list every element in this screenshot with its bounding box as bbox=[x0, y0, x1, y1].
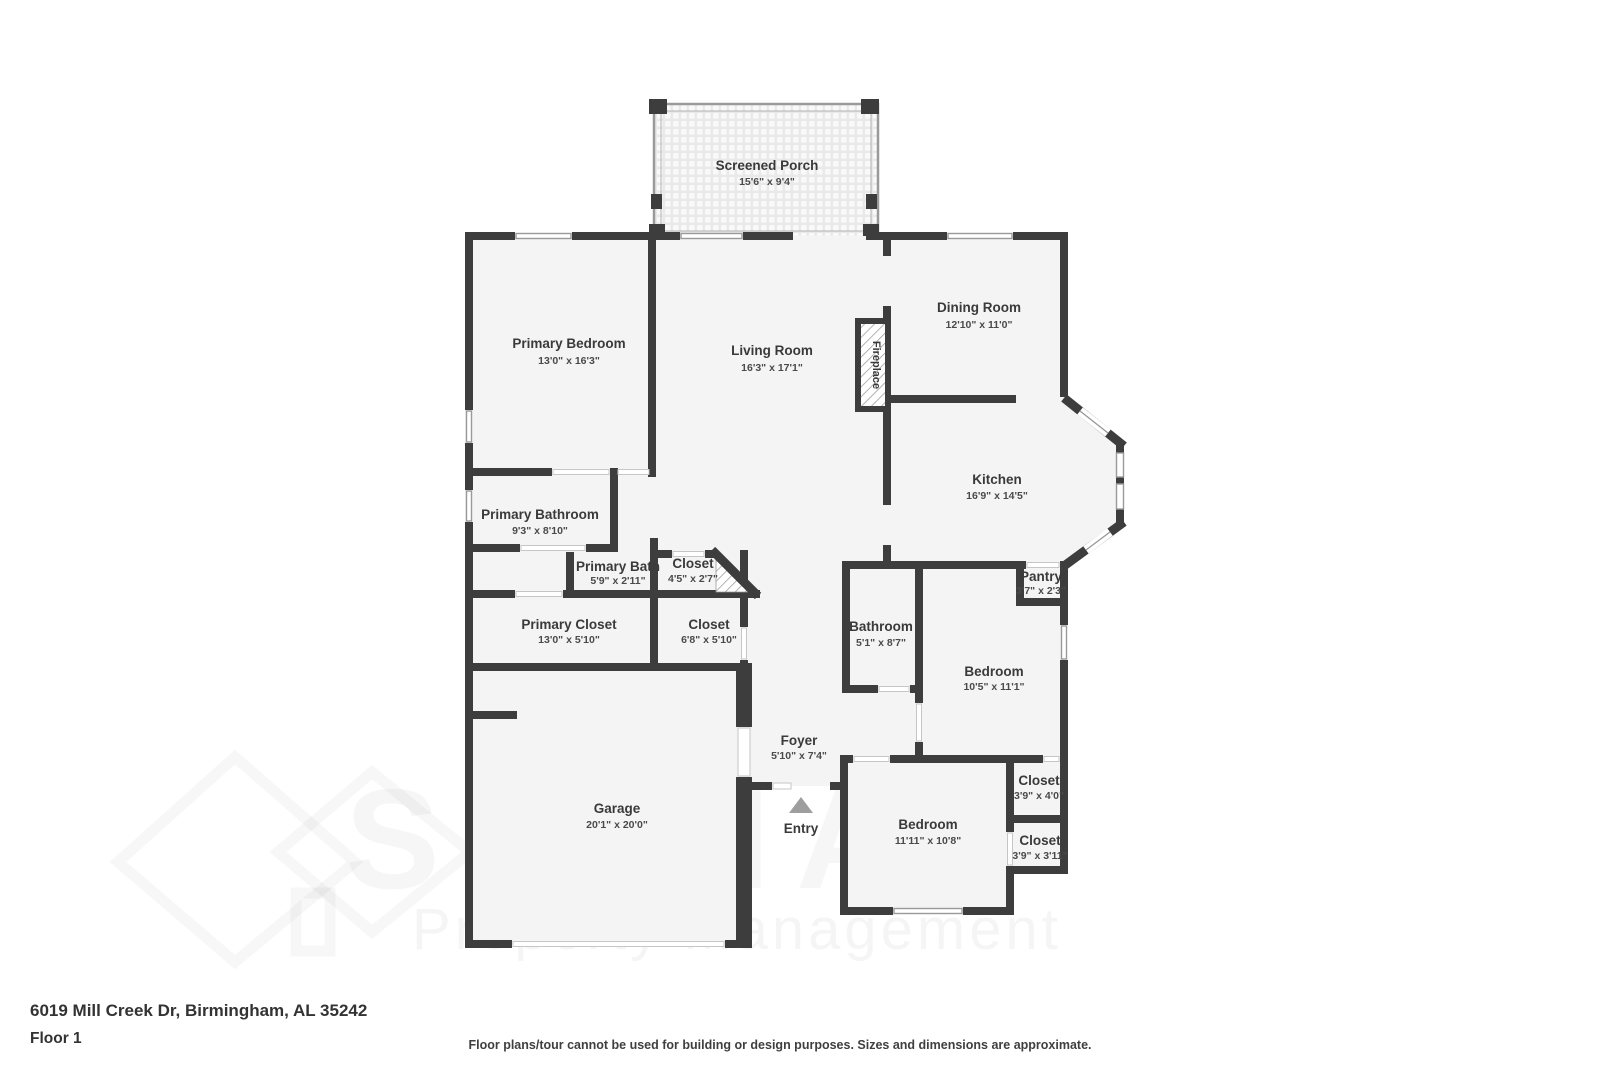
room-dims-foyer: 5'10" x 7'4" bbox=[771, 750, 827, 762]
room-label-bedroom-front: Bedroom bbox=[898, 817, 957, 832]
room-label-pantry: Pantry bbox=[1020, 569, 1063, 584]
room-dims-primary-bedroom: 13'0" x 16'3" bbox=[538, 355, 600, 367]
room-label-living-room: Living Room bbox=[731, 343, 813, 358]
room-label-dining-room: Dining Room bbox=[937, 300, 1021, 315]
room-dims-screened-porch: 15'6" x 9'4" bbox=[739, 176, 795, 188]
room-dims-kitchen: 16'9" x 14'5" bbox=[966, 490, 1028, 502]
room-dims-pantry: 3'7" x 2'3" bbox=[1016, 585, 1066, 597]
room-label-bathroom: Bathroom bbox=[849, 619, 913, 634]
room-dims-closet-rear: 3'9" x 4'0" bbox=[1014, 790, 1064, 802]
room-dims-closet-hall: 4'5" x 2'7" bbox=[668, 573, 718, 585]
room-label-primary-bathroom: Primary Bathroom bbox=[481, 507, 599, 522]
room-label-foyer: Foyer bbox=[781, 733, 819, 748]
room-label-garage: Garage bbox=[594, 801, 641, 816]
room-label-bedroom-rear: Bedroom bbox=[964, 664, 1023, 679]
room-dims-primary-closet: 13'0" x 5'10" bbox=[538, 634, 600, 646]
room-dims-bathroom: 5'1" x 8'7" bbox=[856, 637, 906, 649]
floorplan-page: SIGNAL Property Management bbox=[0, 0, 1600, 1066]
room-label-primary-closet: Primary Closet bbox=[521, 617, 617, 632]
entry-marker bbox=[789, 797, 813, 813]
room-label-closet-front: Closet bbox=[1019, 833, 1061, 848]
room-label-closet-hall: Closet bbox=[672, 556, 714, 571]
room-dims-closet-front: 3'9" x 3'11" bbox=[1012, 850, 1067, 862]
fireplace-label: Fireplace bbox=[870, 341, 882, 389]
room-dims-primary-bathroom: 9'3" x 8'10" bbox=[512, 525, 568, 537]
room-label-screened-porch: Screened Porch bbox=[716, 158, 819, 173]
room-dims-bedroom-rear: 10'5" x 11'1" bbox=[963, 681, 1024, 693]
room-dims-bedroom-front: 11'11" x 10'8" bbox=[895, 835, 961, 847]
entry-label: Entry bbox=[784, 821, 819, 836]
entry-arrow-icon bbox=[789, 797, 813, 813]
room-dims-closet-mid: 6'8" x 5'10" bbox=[681, 634, 737, 646]
room-label-primary-bath: Primary Bath bbox=[576, 559, 660, 574]
room-dims-primary-bath: 5'9" x 2'11" bbox=[590, 575, 645, 587]
room-label-kitchen: Kitchen bbox=[972, 472, 1022, 487]
room-label-primary-bedroom: Primary Bedroom bbox=[512, 336, 625, 351]
room-dims-living-room: 16'3" x 17'1" bbox=[741, 362, 803, 374]
room-dims-garage: 20'1" x 20'0" bbox=[586, 819, 648, 831]
disclaimer-text: Floor plans/tour cannot be used for buil… bbox=[0, 1038, 1560, 1052]
floorplan-drawing: Screened Porch 15'6" x 9'4" Primary Bedr… bbox=[0, 0, 1600, 1066]
room-label-closet-rear: Closet bbox=[1018, 773, 1060, 788]
room-label-closet-mid: Closet bbox=[688, 617, 730, 632]
watermark-logo bbox=[118, 757, 470, 962]
room-dims-dining-room: 12'10" x 11'0" bbox=[946, 319, 1013, 331]
property-address: 6019 Mill Creek Dr, Birmingham, AL 35242 bbox=[30, 1001, 367, 1021]
